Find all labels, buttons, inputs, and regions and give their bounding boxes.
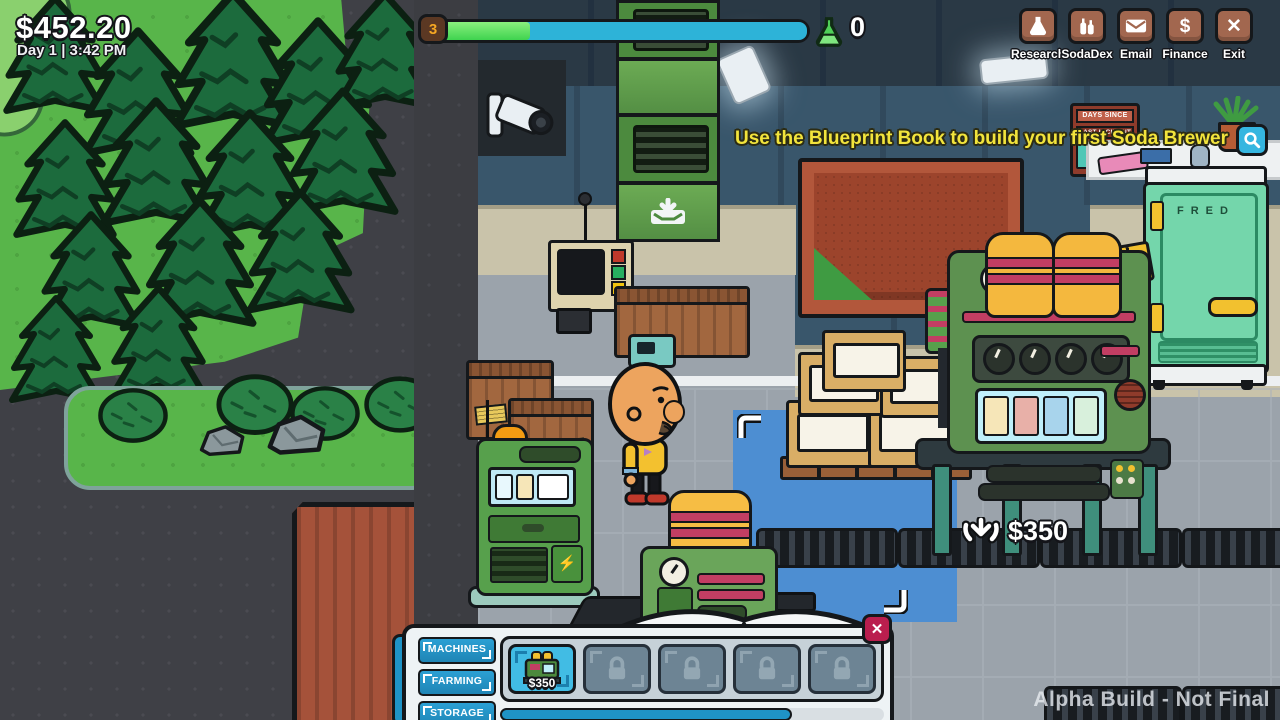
storage-column-crate: [616, 58, 720, 116]
screen-app-icon: [1073, 396, 1099, 436]
delivery-inbox-crate[interactable]: [616, 182, 720, 242]
floor-vent: [1182, 528, 1280, 568]
grill-slat: [986, 465, 1102, 483]
bottles-icon: [1077, 16, 1097, 36]
hud-toolbar: Research SodaDex Email $ Finance ✕ Exit: [1018, 8, 1254, 61]
small-camera: [556, 308, 592, 334]
security-camera: [486, 88, 558, 155]
poster-corner: [814, 248, 872, 300]
research-button[interactable]: [1019, 8, 1057, 44]
terminal-panel: [488, 515, 580, 543]
fridge-hinge: [1150, 303, 1164, 333]
pipe: [697, 573, 765, 585]
power-badge: ⚡: [551, 545, 583, 583]
level-badge: 3: [418, 14, 448, 44]
placement-price: $350: [1008, 516, 1068, 547]
blueprint-tabs: MACHINES FARMING STORAGE: [418, 637, 496, 720]
tutorial-magnifier-button[interactable]: [1236, 124, 1268, 156]
lightning-icon: ⚡: [558, 555, 577, 572]
fridge-vent: [1158, 341, 1258, 363]
lock-icon: [754, 656, 780, 682]
placement-price-tag: $350: [962, 516, 1068, 547]
flask-counter-icon: [812, 16, 846, 48]
slots-scrollbar[interactable]: [500, 708, 792, 720]
syrup-tank: [1052, 232, 1122, 318]
research-label: Research: [1011, 47, 1065, 61]
inbox-arrow-icon: [649, 198, 687, 226]
exit-button[interactable]: ✕: [1215, 8, 1253, 44]
incident-sign-line1: DAYS SINCE: [1076, 109, 1134, 123]
slot-locked[interactable]: [808, 644, 876, 694]
slot-locked[interactable]: [733, 644, 801, 694]
sodadex-label: SodaDex: [1061, 47, 1112, 61]
blueprint-panel: MACHINES FARMING STORAGE $350: [402, 624, 894, 720]
email-label: Email: [1120, 47, 1152, 61]
blueprint-slots: $350: [500, 636, 884, 702]
antenna-tip: [578, 192, 592, 206]
blue-book: [1140, 148, 1172, 164]
terminal-vent: [490, 547, 548, 583]
button-panel: [1110, 459, 1144, 499]
slots-scrollbar-track[interactable]: [500, 708, 884, 720]
tutorial-text: Use the Blueprint Book to build your fir…: [735, 128, 1228, 150]
fridge-foot: [1153, 380, 1165, 390]
game-screen: DAYS SINCE LAST INCIDENT FRED: [0, 0, 1280, 720]
finance-button[interactable]: $: [1166, 8, 1204, 44]
fridge-foot: [1241, 380, 1253, 390]
player-character: [598, 360, 688, 510]
xp-bar: [424, 19, 810, 43]
pipe: [1100, 345, 1140, 357]
screen-app-icon: [1043, 396, 1069, 436]
alpha-build-watermark: Alpha Build - Not Final: [1033, 688, 1270, 712]
syrup-tank: [985, 232, 1055, 318]
storage-column-crate: [616, 114, 720, 184]
bush: [96, 384, 170, 444]
rock: [192, 420, 250, 460]
grill-slat: [978, 483, 1110, 501]
flask-counter-value: 0: [850, 12, 865, 43]
close-blueprint-button[interactable]: ✕: [862, 614, 892, 644]
brewer-table-leg: [932, 464, 952, 556]
x-icon: ✕: [1226, 17, 1242, 36]
finance-label: Finance: [1162, 47, 1207, 61]
day-time-display: Day 1 | 3:42 PM: [17, 42, 126, 59]
tab-storage[interactable]: STORAGE: [418, 701, 496, 720]
lock-icon: [679, 656, 705, 682]
flask-icon: [1028, 16, 1048, 36]
close-icon: ✕: [871, 621, 884, 638]
money-display: $452.20: [16, 10, 132, 46]
fridge-hinge: [1150, 201, 1164, 231]
slot-price: $350: [511, 676, 573, 690]
mat-corner-bracket: [737, 414, 763, 440]
pine-tree: [243, 188, 358, 326]
slot-soda-brewer[interactable]: $350: [508, 644, 576, 694]
brewer-screen: [975, 388, 1107, 444]
lock-icon: [829, 656, 855, 682]
speaker: [1114, 379, 1146, 411]
delivery-terminal[interactable]: ⚡: [476, 438, 594, 596]
screen-app-icon: [1013, 396, 1039, 436]
tab-farming[interactable]: FARMING: [418, 669, 496, 696]
envelope-icon: [1125, 17, 1147, 35]
sodadex-button[interactable]: [1068, 8, 1106, 44]
fridge-handle: [1208, 297, 1258, 317]
lock-icon: [604, 656, 630, 682]
email-button[interactable]: [1117, 8, 1155, 44]
shipping-label: [474, 403, 508, 425]
fridge-label: FRED: [1146, 205, 1266, 217]
dollar-icon: $: [1180, 17, 1191, 36]
fridge[interactable]: FRED: [1143, 166, 1267, 398]
place-arrow-icon: [962, 517, 1000, 547]
gauge-dial: [659, 557, 689, 587]
rock: [258, 408, 332, 460]
screen-app-icon: [983, 396, 1009, 436]
tab-machines[interactable]: MACHINES: [418, 637, 496, 664]
dial-strip: [972, 335, 1130, 383]
terminal-screen: [488, 467, 576, 507]
slot-locked[interactable]: [583, 644, 651, 694]
cardboard-box: [822, 330, 906, 392]
slot-locked[interactable]: [658, 644, 726, 694]
exit-label: Exit: [1223, 47, 1245, 61]
magnifier-icon: [1243, 131, 1261, 149]
